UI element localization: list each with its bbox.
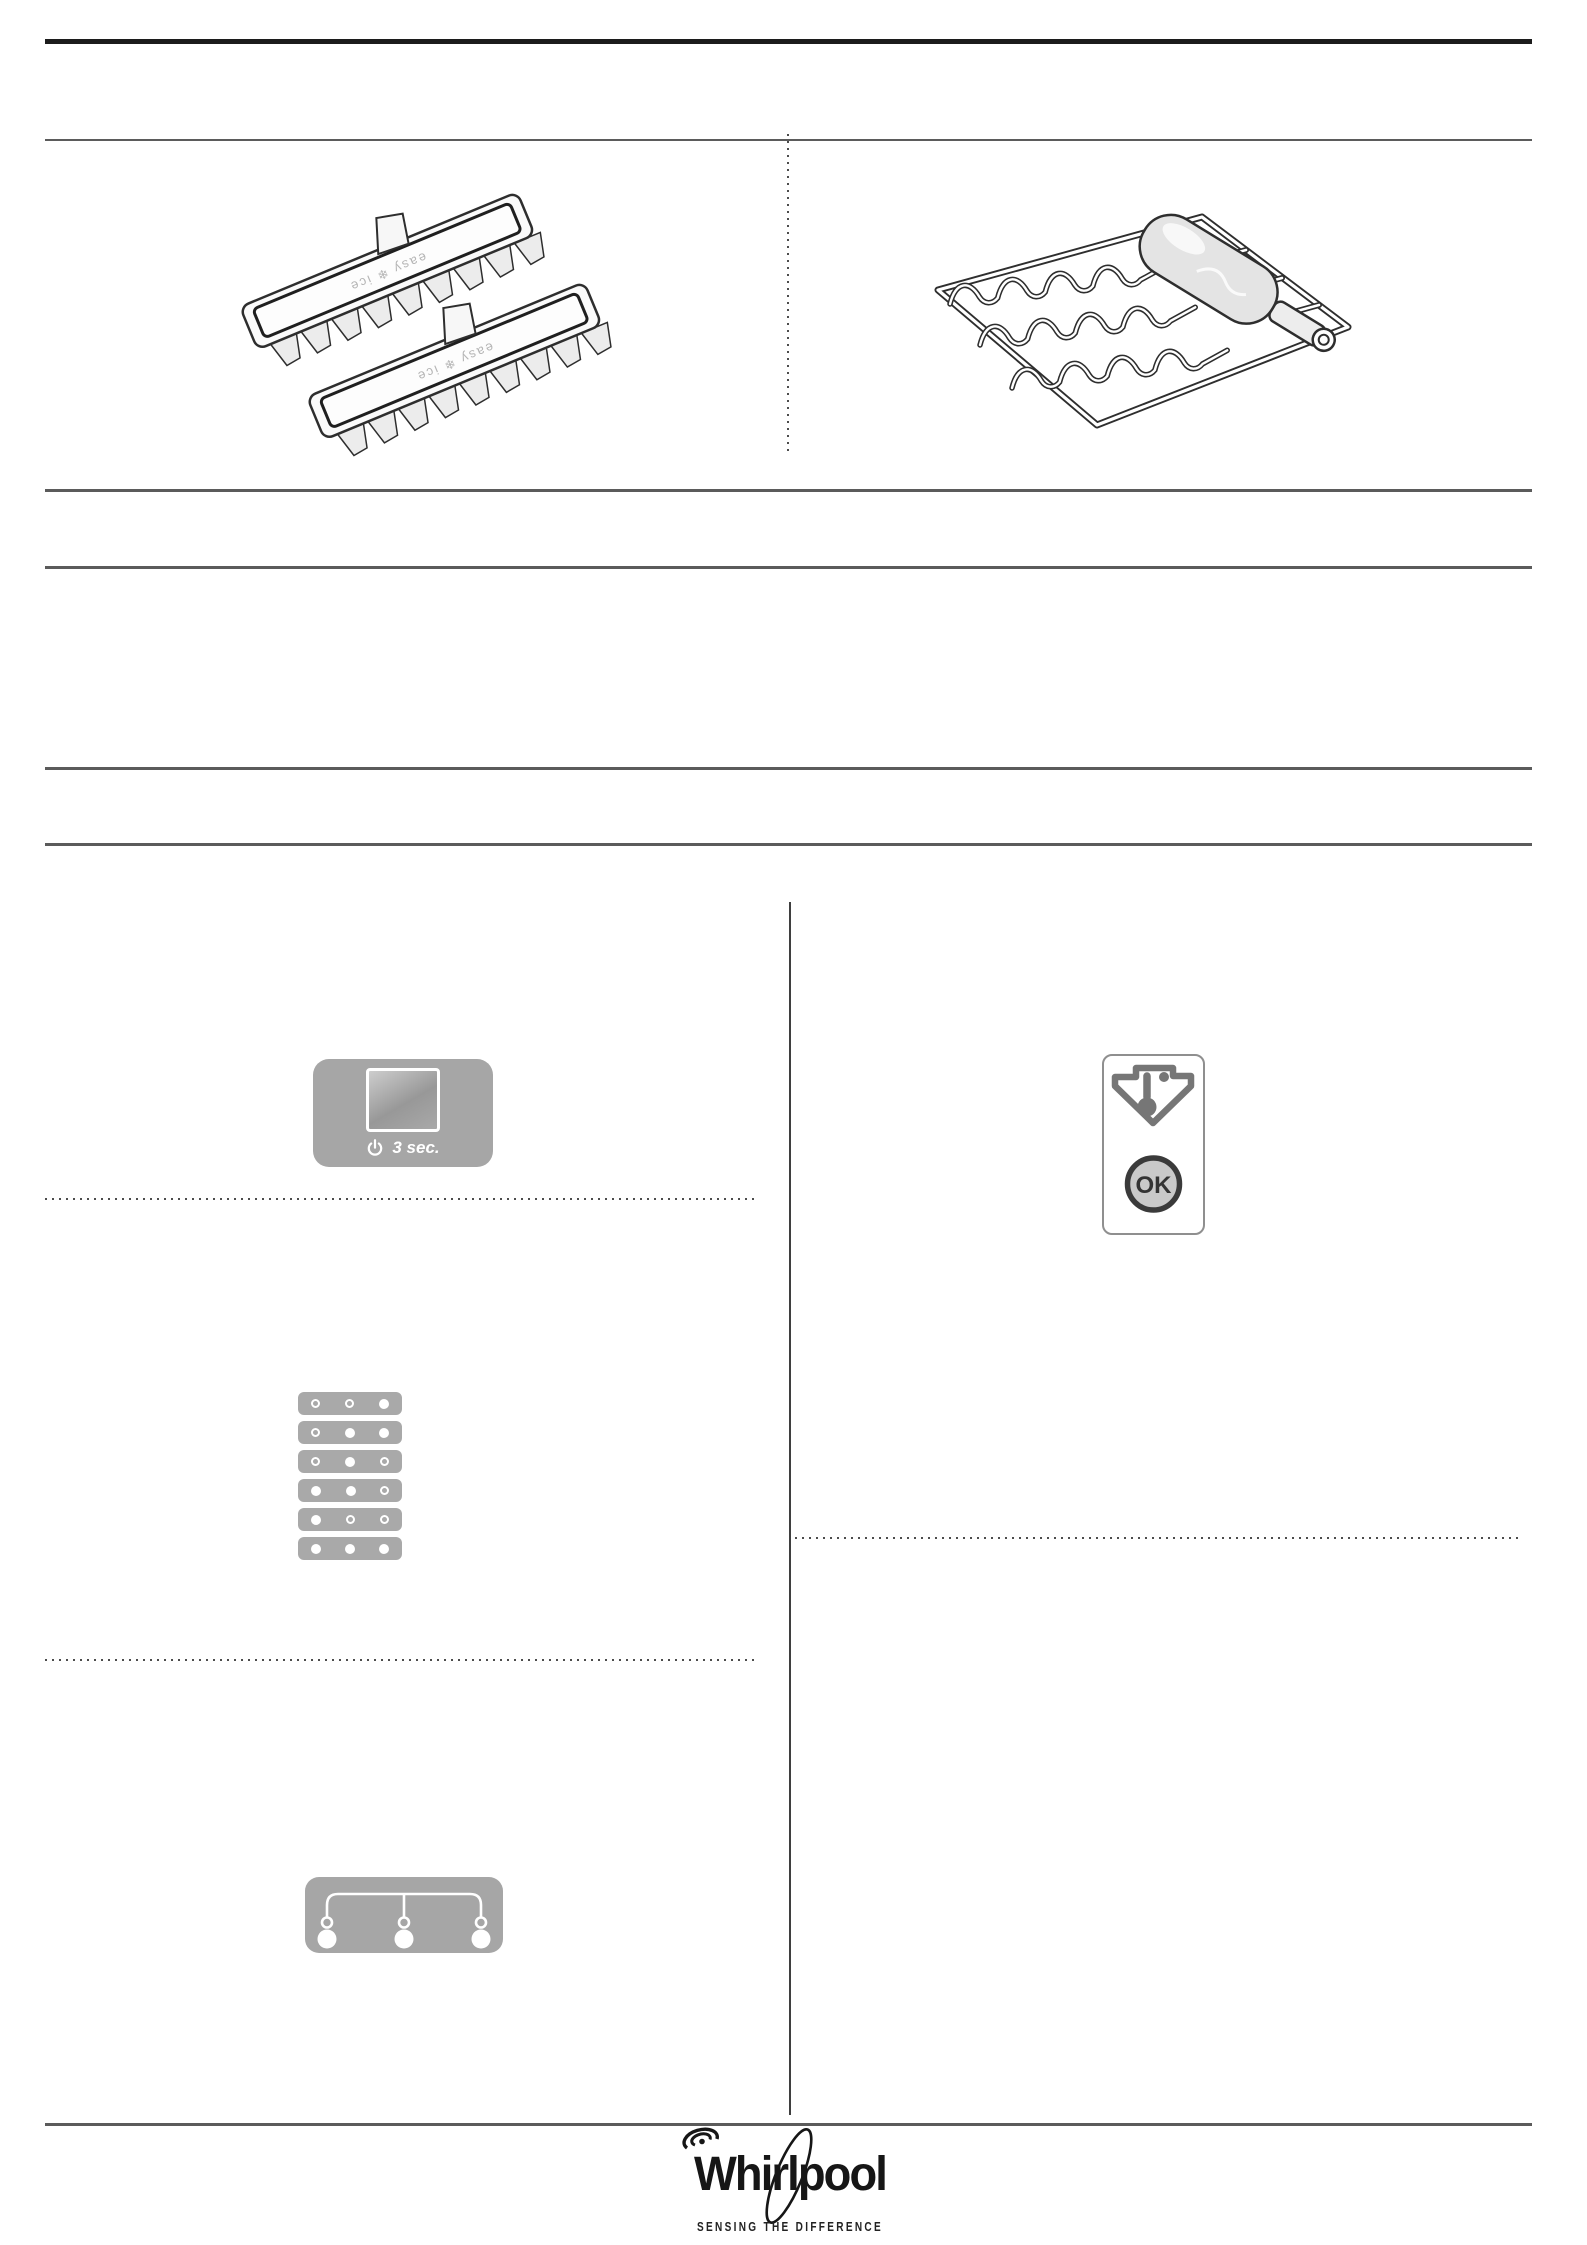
ok-badge: OK (1128, 1158, 1180, 1210)
power-panel-graphic: 3 sec. (313, 1059, 493, 1167)
led-dot-hollow (311, 1428, 320, 1437)
led-dot-hollow (311, 1457, 320, 1466)
preset-row (298, 1479, 402, 1502)
preset-row (298, 1508, 402, 1531)
led-dot-hollow (346, 1515, 355, 1524)
led-dot-filled (379, 1399, 389, 1409)
hold-duration-label: 3 sec. (392, 1138, 439, 1158)
preset-row (298, 1392, 402, 1415)
led-dot-filled (345, 1544, 355, 1554)
column-divider (789, 902, 791, 2115)
led-dot-filled (346, 1486, 356, 1496)
led-dot-filled (379, 1544, 389, 1554)
preset-row (298, 1450, 402, 1473)
connector-diagram (305, 1877, 503, 1953)
led-dot-filled (311, 1486, 321, 1496)
led-dot-filled (311, 1544, 321, 1554)
ice-trays-illustration: easy ❄ ice easy ❄ ice (195, 185, 625, 465)
small-circles (322, 1918, 486, 1928)
preset-row (298, 1537, 402, 1560)
led-dot-filled (345, 1428, 355, 1438)
bottle-illustration (1128, 204, 1349, 372)
illustration-divider-dotted (787, 134, 789, 452)
power-icon (366, 1139, 384, 1157)
brand-tagline: SENSING THE DIFFERENCE (697, 2219, 883, 2234)
brand-wordmark: Whirlpool (694, 2148, 886, 2201)
section-rule-4 (45, 767, 1532, 770)
right-dotted-separator (795, 1537, 1523, 1539)
top-rule (45, 39, 1532, 44)
whirlpool-logo: Whirlpool SENSING THE DIFFERENCE (655, 2126, 925, 2241)
temperature-down-arrow-icon (1115, 1068, 1191, 1123)
temperature-ok-card: OK (1102, 1054, 1205, 1235)
section-rule-5 (45, 843, 1532, 846)
connector-panel-graphic (305, 1877, 503, 1953)
led-dot-hollow (380, 1457, 389, 1466)
left-dotted-separator-2 (45, 1659, 759, 1661)
left-dotted-separator-1 (45, 1198, 759, 1200)
manual-page: easy ❄ ice easy ❄ ice (0, 0, 1587, 2245)
ok-label: OK (1136, 1172, 1173, 1199)
preset-row (298, 1421, 402, 1444)
led-dot-filled (345, 1457, 355, 1467)
preset-button-rows (298, 1392, 402, 1566)
section-rule-2 (45, 489, 1532, 492)
connector-bracket (327, 1894, 481, 1917)
led-dot-hollow (311, 1399, 320, 1408)
led-dot-filled (311, 1515, 321, 1525)
led-dot-hollow (380, 1486, 389, 1495)
led-dot-hollow (380, 1515, 389, 1524)
display (366, 1068, 440, 1132)
led-dot-hollow (345, 1399, 354, 1408)
large-circles (318, 1930, 491, 1949)
section-rule-3 (45, 566, 1532, 569)
led-dot-filled (379, 1428, 389, 1438)
wine-rack-illustration (910, 190, 1370, 440)
whirlpool-swirl-icon (684, 2129, 717, 2148)
